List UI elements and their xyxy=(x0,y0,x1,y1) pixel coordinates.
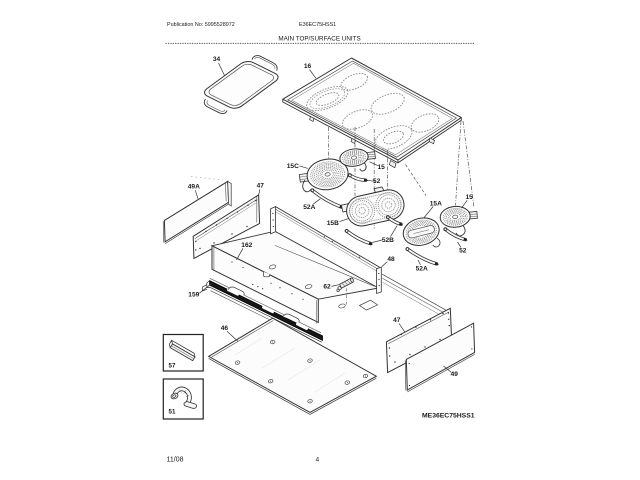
svg-text:49A: 49A xyxy=(188,184,200,191)
svg-text:52A: 52A xyxy=(303,204,315,211)
svg-text:E36EC75HSS1: E36EC75HSS1 xyxy=(299,22,336,28)
svg-text:4: 4 xyxy=(316,456,320,463)
svg-text:15: 15 xyxy=(378,164,386,171)
svg-text:52: 52 xyxy=(373,178,381,185)
svg-text:15A: 15A xyxy=(430,200,442,207)
svg-text:Publication No: 5995528972: Publication No: 5995528972 xyxy=(167,22,235,28)
svg-text:52: 52 xyxy=(459,247,467,254)
svg-text:34: 34 xyxy=(213,56,221,63)
svg-text:11/08: 11/08 xyxy=(167,456,184,463)
svg-text:159: 159 xyxy=(188,292,199,299)
svg-text:52B: 52B xyxy=(382,237,394,244)
svg-text:46: 46 xyxy=(221,325,229,332)
svg-text:48: 48 xyxy=(387,256,395,263)
svg-text:MAIN TOP/SURFACE UNITS: MAIN TOP/SURFACE UNITS xyxy=(278,36,360,43)
svg-text:49: 49 xyxy=(451,371,459,378)
svg-text:15B: 15B xyxy=(327,220,339,227)
svg-text:162: 162 xyxy=(241,242,252,249)
svg-text:15: 15 xyxy=(466,194,474,201)
svg-text:47: 47 xyxy=(257,183,265,190)
svg-text:47: 47 xyxy=(393,317,401,324)
svg-text:57: 57 xyxy=(169,363,176,370)
svg-text:62: 62 xyxy=(323,284,331,291)
svg-text:52A: 52A xyxy=(416,265,428,272)
svg-text:15C: 15C xyxy=(287,163,299,170)
svg-text:51: 51 xyxy=(169,409,176,416)
svg-text:ME36EC75HSS1: ME36EC75HSS1 xyxy=(422,412,475,419)
svg-text:16: 16 xyxy=(304,63,312,70)
